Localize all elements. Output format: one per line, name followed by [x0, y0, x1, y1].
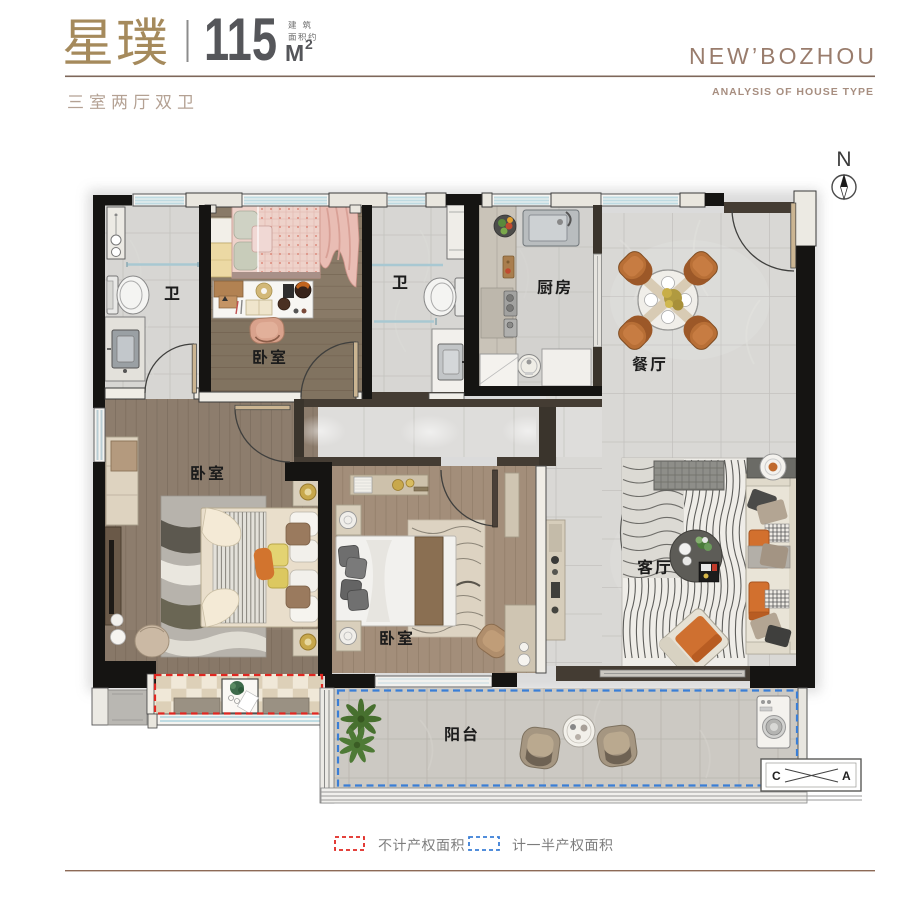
- svg-text:115: 115: [204, 6, 277, 73]
- svg-text:C: C: [772, 769, 781, 783]
- svg-text:M: M: [285, 40, 304, 66]
- svg-text:2: 2: [305, 36, 313, 52]
- svg-text:A: A: [842, 769, 851, 783]
- svg-text:NEW’BOZHOU: NEW’BOZHOU: [689, 43, 874, 69]
- svg-text:ANALYSIS OF HOUSE TYPE: ANALYSIS OF HOUSE TYPE: [712, 86, 873, 98]
- svg-text:N: N: [836, 148, 851, 171]
